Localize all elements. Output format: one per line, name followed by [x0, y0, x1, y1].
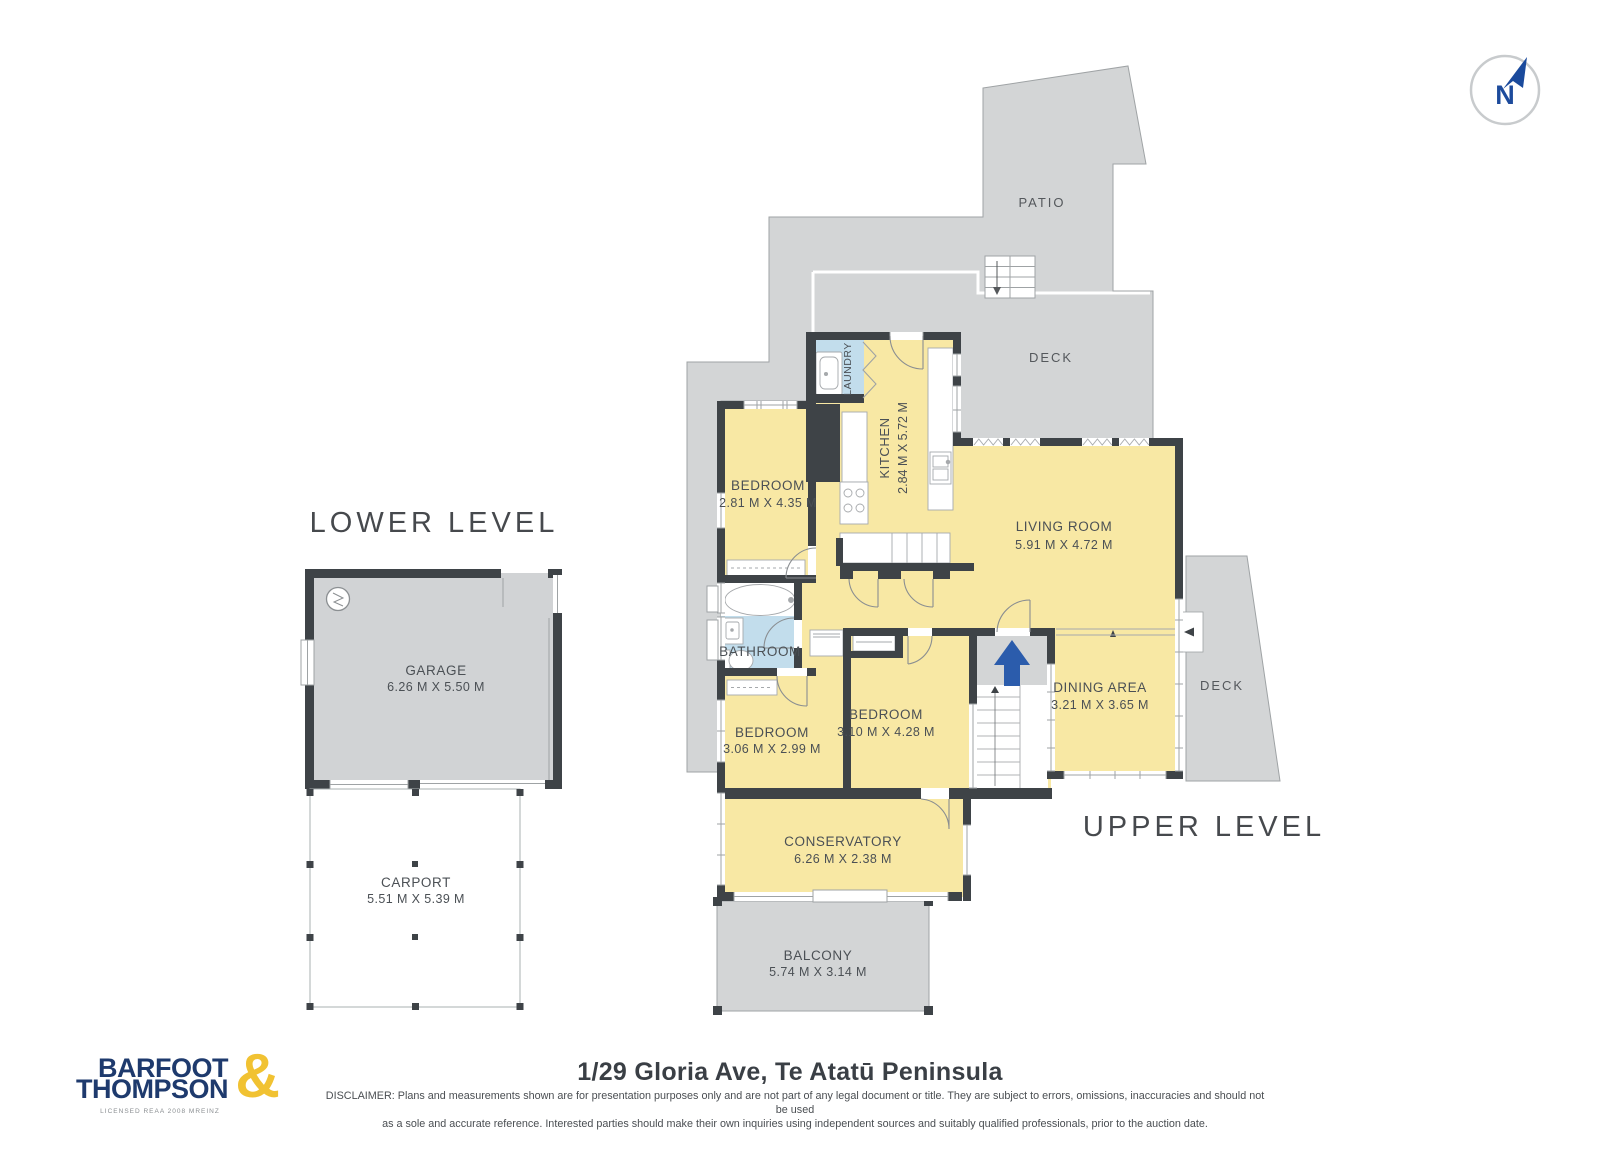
kitchen-counter-row: [840, 533, 950, 563]
disclaimer-line2: as a sole and accurate reference. Intere…: [320, 1117, 1270, 1131]
lower-level-title: LOWER LEVEL: [310, 507, 559, 539]
deck-right-area: [1186, 556, 1280, 781]
bedroom-mid-dims: 3.06 M X 2.99 M: [723, 742, 821, 756]
bedroom-top-closet: [727, 560, 805, 576]
cooktop: [840, 482, 868, 524]
compass-n-label: N: [1495, 80, 1515, 110]
disclaimer-text: DISCLAIMER: Plans and measurements shown…: [320, 1089, 1270, 1131]
bedroom-right-label: BEDROOM: [849, 707, 923, 722]
bedroom-mid-closet: [727, 680, 777, 695]
bathroom-label: BATHROOM: [719, 644, 801, 659]
bedroom-mid-label: BEDROOM: [735, 725, 809, 740]
lower-level: [301, 569, 562, 1010]
kitchen-counter-right: [928, 348, 953, 510]
bedroom-right-wardrobe: [853, 634, 895, 651]
conservatory-dims: 6.26 M X 2.38 M: [794, 852, 892, 866]
north-compass: N: [1471, 56, 1539, 124]
living-room-dims: 5.91 M X 4.72 M: [1015, 538, 1113, 552]
balcony-label: BALCONY: [784, 948, 853, 963]
stairwell: [977, 632, 1048, 788]
carport-label: CARPORT: [381, 875, 451, 890]
patio-steps: [985, 256, 1035, 298]
disclaimer-line1: DISCLAIMER: Plans and measurements shown…: [320, 1089, 1270, 1117]
carport-dims: 5.51 M X 5.39 M: [367, 892, 465, 906]
kitchen-counter-left: [840, 412, 868, 524]
bedroom-top-label: BEDROOM: [731, 478, 805, 493]
deck-entry-step: [1181, 612, 1203, 652]
bathtub: [725, 585, 795, 616]
floor-plan-canvas: N LOWER LEVEL UPPER LEVEL PATIO DECK DEC…: [0, 0, 1600, 1167]
deck-top-label: DECK: [1029, 350, 1073, 365]
logo-tagline: LICENSED REAA 2008 MREINZ: [80, 1108, 240, 1115]
living-room-label: LIVING ROOM: [1016, 519, 1113, 534]
deck-right-label: DECK: [1200, 678, 1244, 693]
upper-level-title: UPPER LEVEL: [1083, 811, 1325, 843]
balcony-dims: 5.74 M X 3.14 M: [769, 965, 867, 979]
bedroom-top-dims: 2.81 M X 4.35 M: [719, 496, 817, 510]
floor-plan-page: { "compass": {"label": "N"}, "lower_leve…: [0, 0, 1600, 1167]
bedroom-right-dims: 3.10 M X 4.28 M: [837, 725, 935, 739]
dining-dims: 3.21 M X 3.65 M: [1051, 698, 1149, 712]
hot-water-cylinder: [327, 588, 350, 611]
conservatory-label: CONSERVATORY: [784, 834, 902, 849]
garage-dims: 6.26 M X 5.50 M: [387, 680, 485, 694]
hall-closet: [810, 630, 843, 656]
patio-label: PATIO: [1018, 195, 1065, 210]
dining-label: DINING AREA: [1053, 680, 1147, 695]
laundry-label: LAUNDRY: [842, 342, 854, 396]
kitchen-label: KITCHEN: [877, 417, 892, 478]
kitchen-dims: 2.84 M X 5.72 M: [896, 402, 910, 494]
laundry-tub: [816, 352, 842, 395]
garage-label: GARAGE: [405, 663, 466, 678]
property-address-title: 1/29 Gloria Ave, Te Atatū Peninsula: [0, 1058, 1580, 1087]
